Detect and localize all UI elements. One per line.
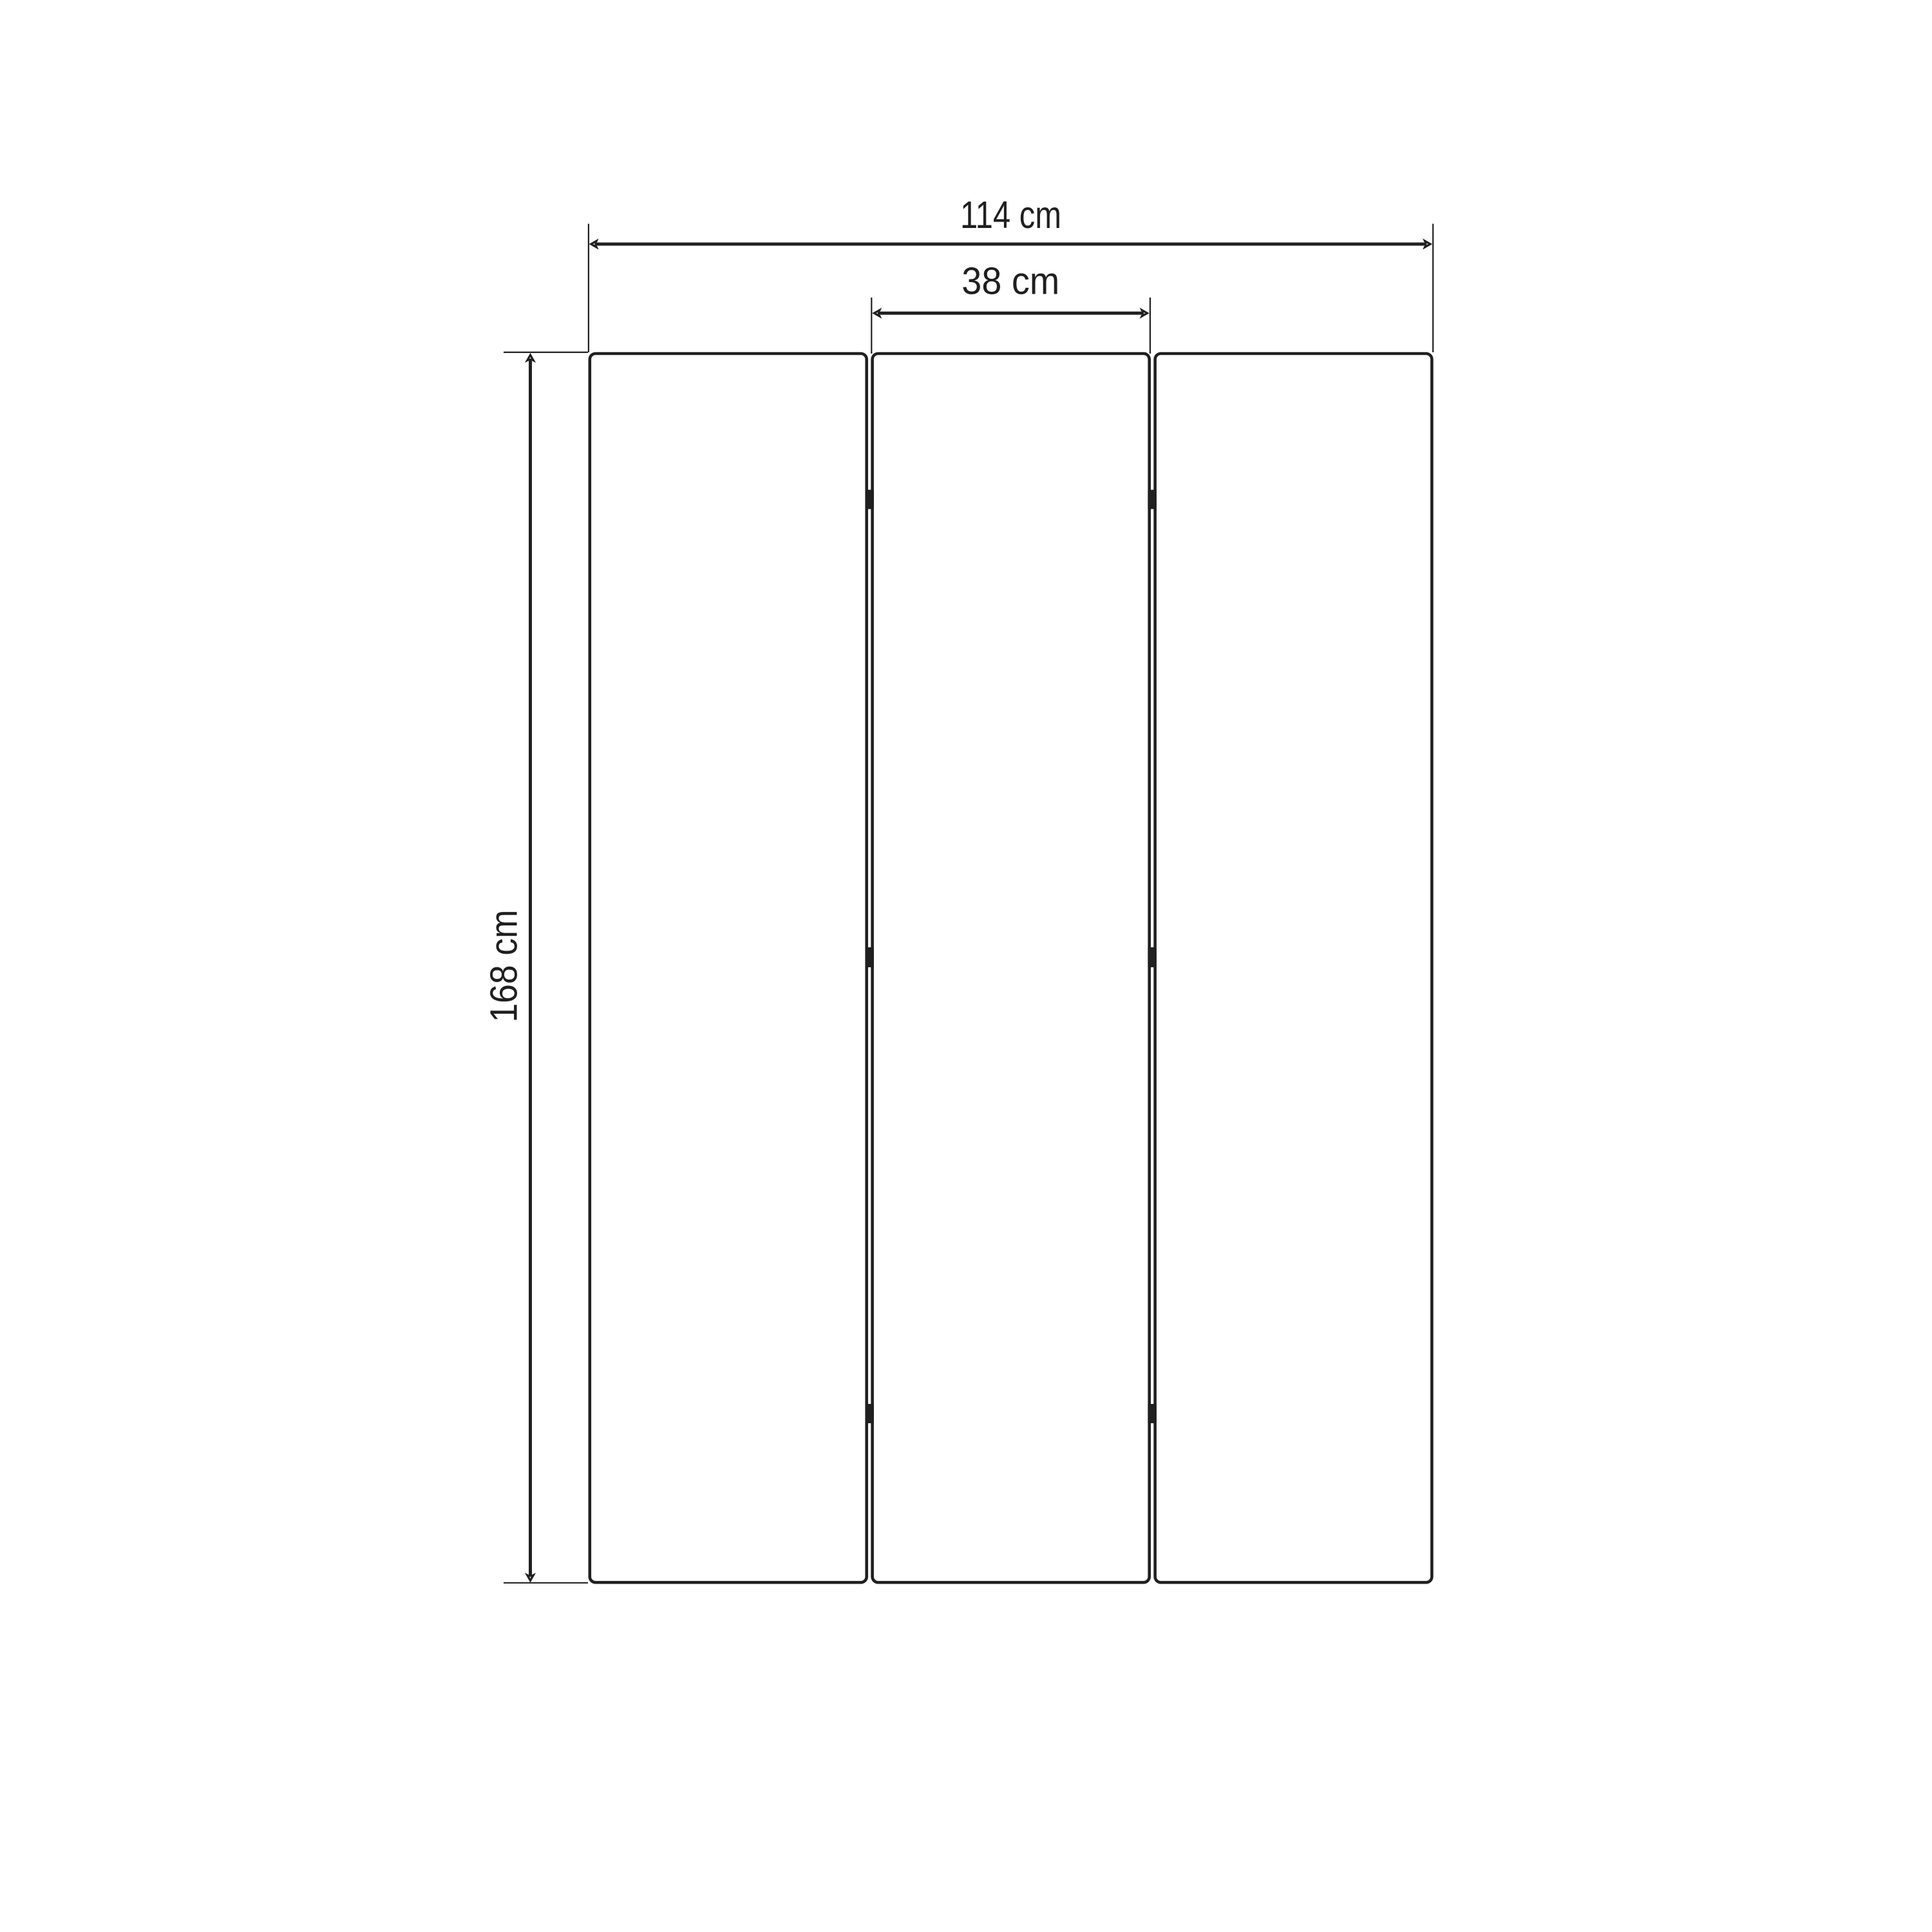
svg-text:38 cm: 38 cm [961,260,1059,303]
svg-text:114 cm: 114 cm [960,194,1061,236]
svg-text:168 cm: 168 cm [483,910,526,1023]
